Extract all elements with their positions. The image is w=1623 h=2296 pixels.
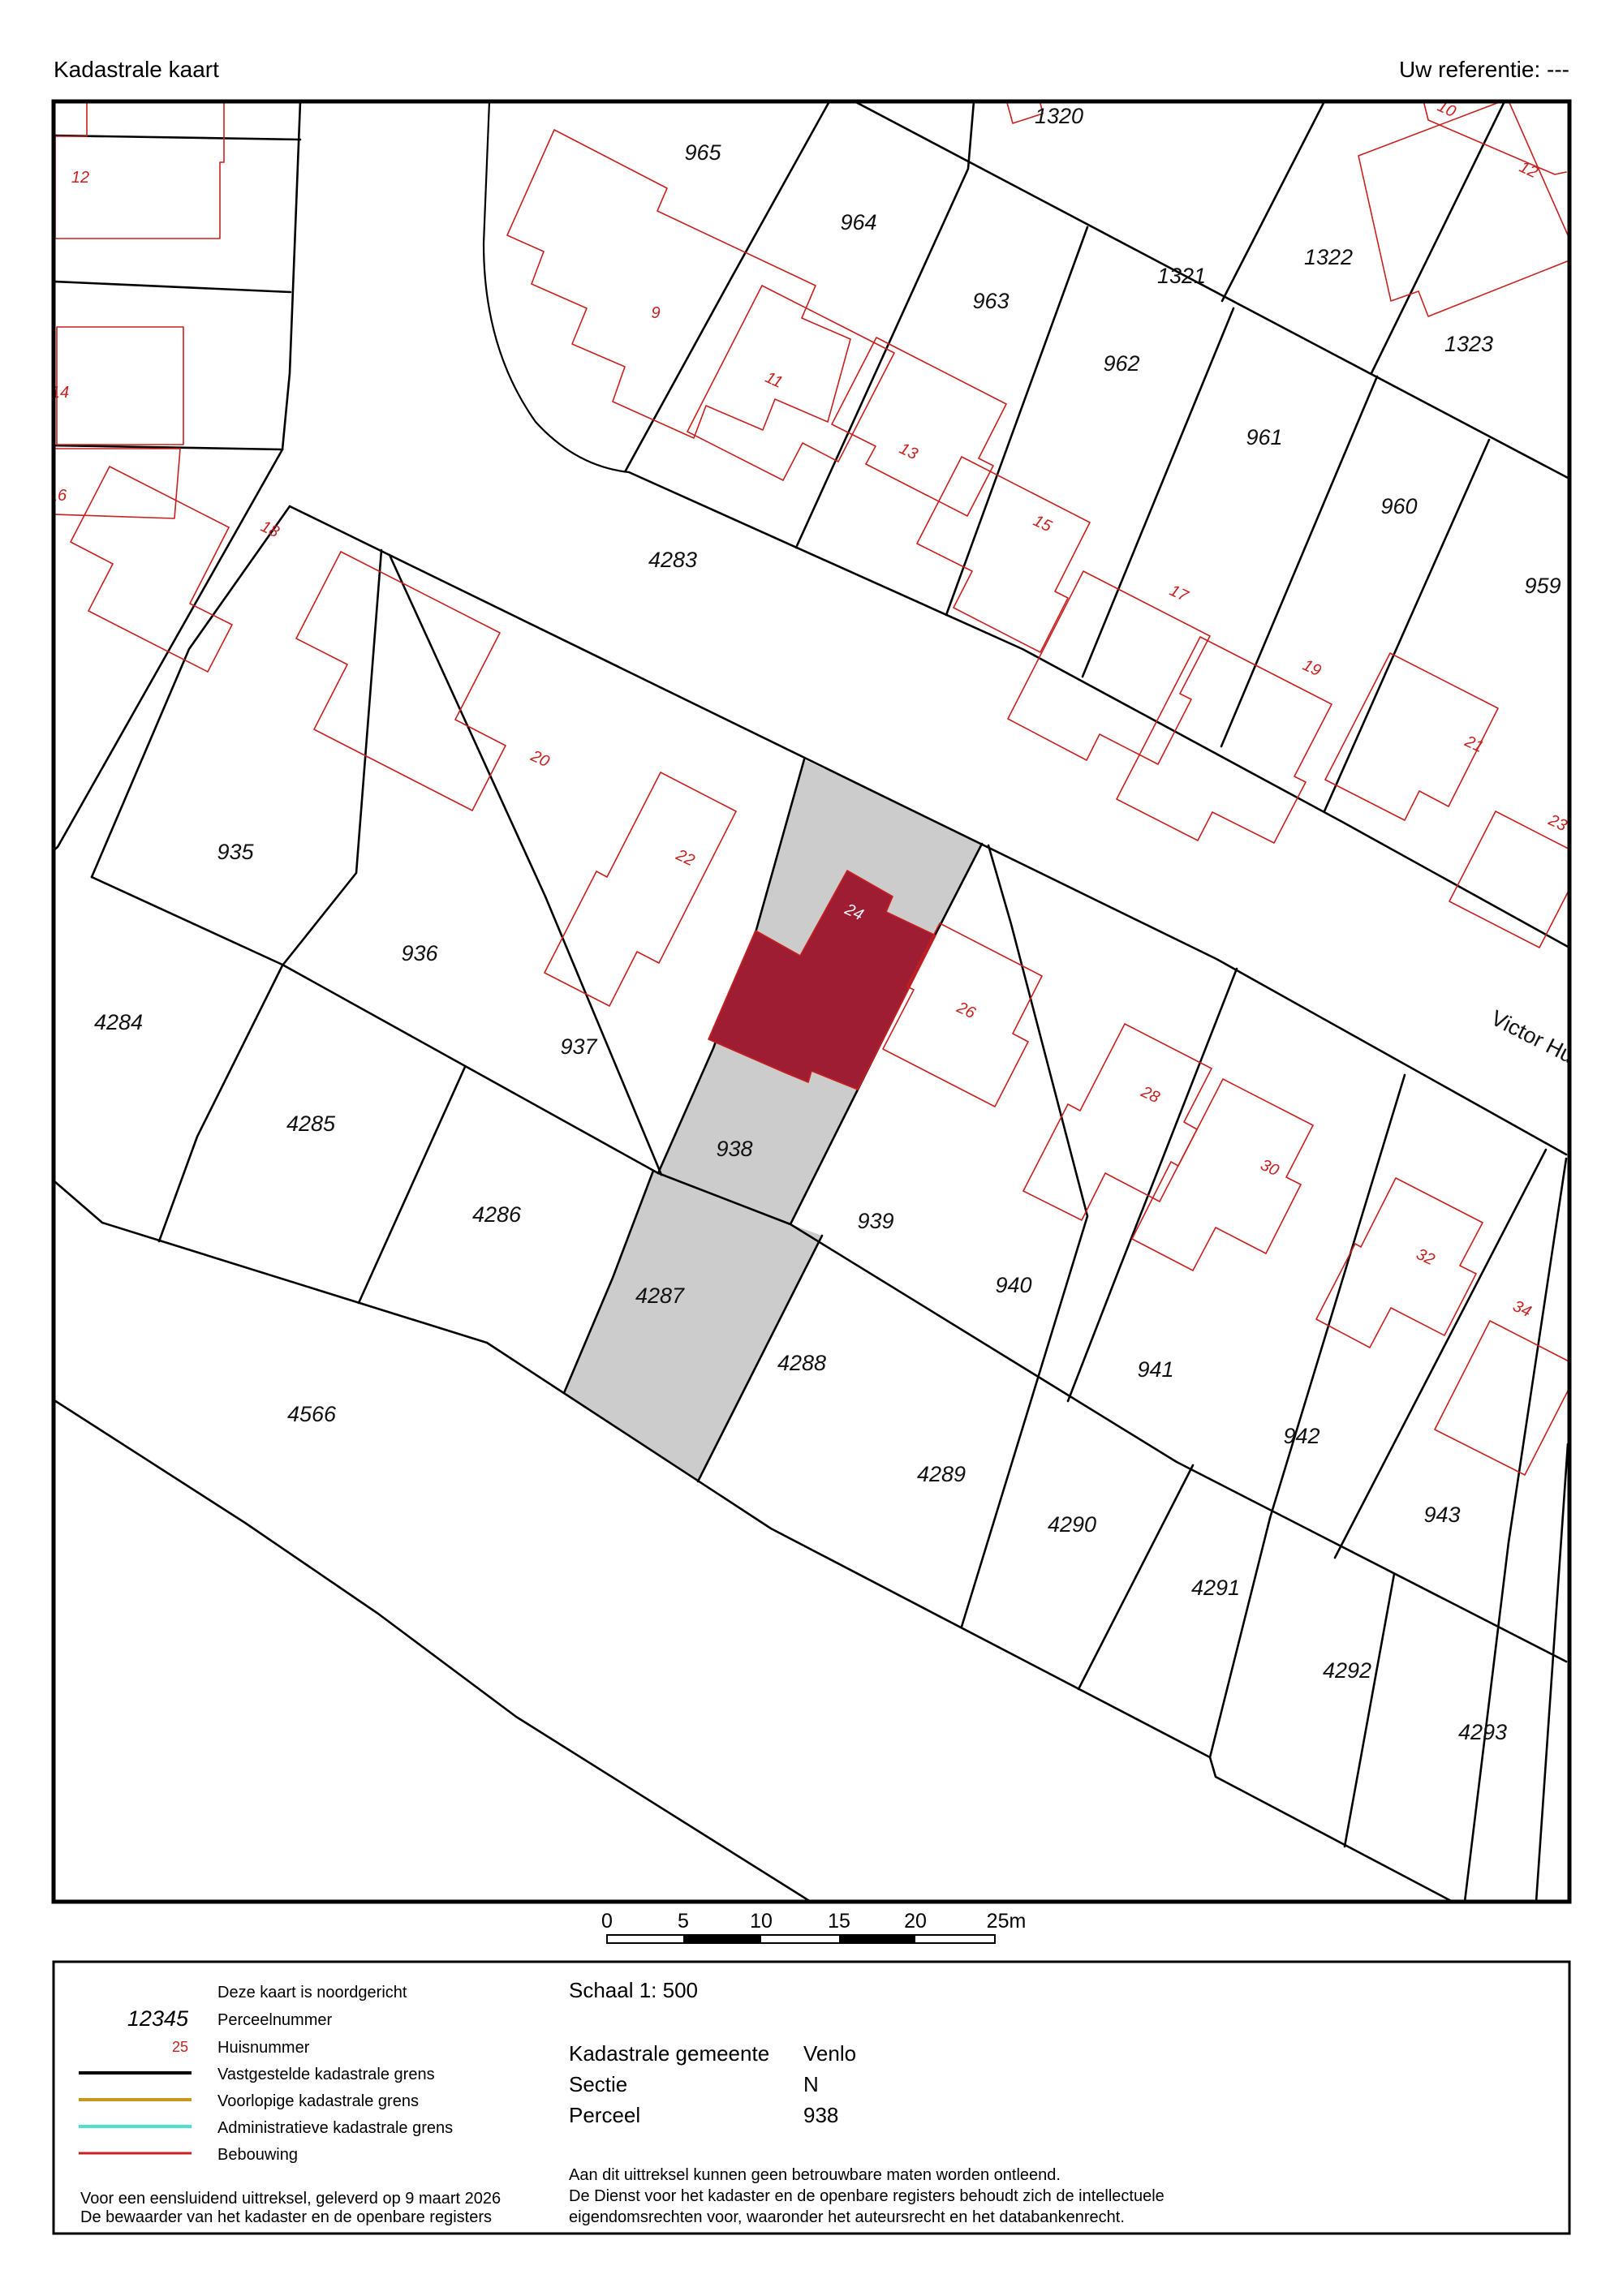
svg-text:4292: 4292: [1323, 1658, 1371, 1683]
svg-text:4293: 4293: [1458, 1720, 1507, 1744]
svg-text:De bewaarder van het kadaster: De bewaarder van het kadaster en de open…: [80, 2208, 492, 2226]
svg-text:Deze kaart is noordgericht: Deze kaart is noordgericht: [217, 1984, 407, 2001]
svg-text:12: 12: [71, 169, 89, 187]
svg-text:4289: 4289: [917, 1462, 966, 1486]
svg-text:Sectie: Sectie: [569, 2072, 627, 2096]
svg-text:961: 961: [1246, 425, 1282, 449]
svg-text:4283: 4283: [648, 548, 697, 572]
svg-text:4285: 4285: [286, 1111, 336, 1136]
svg-text:Aan dit uittreksel kunnen geen: Aan dit uittreksel kunnen geen betrouwba…: [569, 2166, 1061, 2184]
svg-text:960: 960: [1380, 494, 1417, 518]
svg-text:25m: 25m: [987, 1910, 1027, 1933]
svg-text:943: 943: [1423, 1503, 1460, 1527]
svg-text:964: 964: [840, 210, 876, 234]
svg-text:935: 935: [217, 840, 254, 864]
svg-text:Voor een eensluidend uittrekse: Voor een eensluidend uittreksel, gelever…: [80, 2190, 501, 2208]
svg-text:939: 939: [857, 1209, 893, 1233]
svg-text:4286: 4286: [472, 1202, 522, 1227]
svg-text:15: 15: [828, 1910, 850, 1933]
svg-text:4284: 4284: [94, 1010, 143, 1034]
svg-text:4566: 4566: [287, 1402, 337, 1426]
svg-text:Kadastrale gemeente: Kadastrale gemeente: [569, 2041, 769, 2066]
svg-text:937: 937: [560, 1034, 597, 1059]
svg-text:Voorlopige kadastrale grens: Voorlopige kadastrale grens: [217, 2092, 419, 2110]
svg-text:936: 936: [401, 941, 438, 965]
svg-text:N: N: [803, 2072, 819, 2096]
svg-text:Venlo: Venlo: [803, 2041, 856, 2066]
svg-text:10: 10: [750, 1910, 773, 1933]
svg-text:Administratieve kadastrale gre: Administratieve kadastrale grens: [217, 2119, 453, 2137]
svg-text:938: 938: [803, 2103, 838, 2127]
svg-text:1321: 1321: [1157, 264, 1206, 288]
svg-text:4290: 4290: [1048, 1512, 1096, 1537]
svg-text:4291: 4291: [1191, 1576, 1240, 1600]
svg-text:Perceelnummer: Perceelnummer: [217, 2011, 333, 2029]
svg-text:Bebouwing: Bebouwing: [217, 2146, 298, 2164]
svg-text:4288: 4288: [777, 1351, 826, 1375]
svg-text:20: 20: [904, 1910, 927, 1933]
svg-text:941: 941: [1137, 1357, 1173, 1382]
svg-text:1320: 1320: [1035, 104, 1083, 128]
svg-text:4287: 4287: [635, 1283, 685, 1308]
svg-text:Uw referentie: ---: Uw referentie: ---: [1399, 57, 1569, 82]
svg-text:965: 965: [684, 140, 721, 165]
svg-text:eigendomsrechten voor, waarond: eigendomsrechten voor, waaronder het aut…: [569, 2208, 1125, 2226]
svg-text:De Dienst voor het kadaster en: De Dienst voor het kadaster en de openba…: [569, 2187, 1165, 2205]
svg-text:Schaal 1: 500: Schaal 1: 500: [569, 1978, 698, 2002]
svg-text:Kadastrale kaart: Kadastrale kaart: [54, 57, 219, 82]
svg-text:1322: 1322: [1304, 245, 1353, 269]
svg-text:0: 0: [601, 1910, 613, 1933]
svg-text:Vastgestelde kadastrale grens: Vastgestelde kadastrale grens: [217, 2066, 435, 2083]
svg-text:Perceel: Perceel: [569, 2103, 640, 2127]
svg-text:9: 9: [651, 304, 660, 322]
svg-text:12345: 12345: [127, 2006, 189, 2031]
svg-text:16: 16: [49, 487, 67, 505]
svg-text:940: 940: [995, 1273, 1031, 1297]
svg-text:942: 942: [1283, 1424, 1319, 1448]
svg-text:5: 5: [678, 1910, 689, 1933]
svg-text:25: 25: [172, 2039, 188, 2055]
svg-text:Huisnummer: Huisnummer: [217, 2039, 310, 2057]
svg-text:959: 959: [1524, 574, 1561, 598]
svg-text:1323: 1323: [1444, 332, 1493, 356]
svg-text:938: 938: [716, 1137, 752, 1161]
svg-text:963: 963: [972, 289, 1009, 313]
svg-text:962: 962: [1103, 351, 1139, 376]
